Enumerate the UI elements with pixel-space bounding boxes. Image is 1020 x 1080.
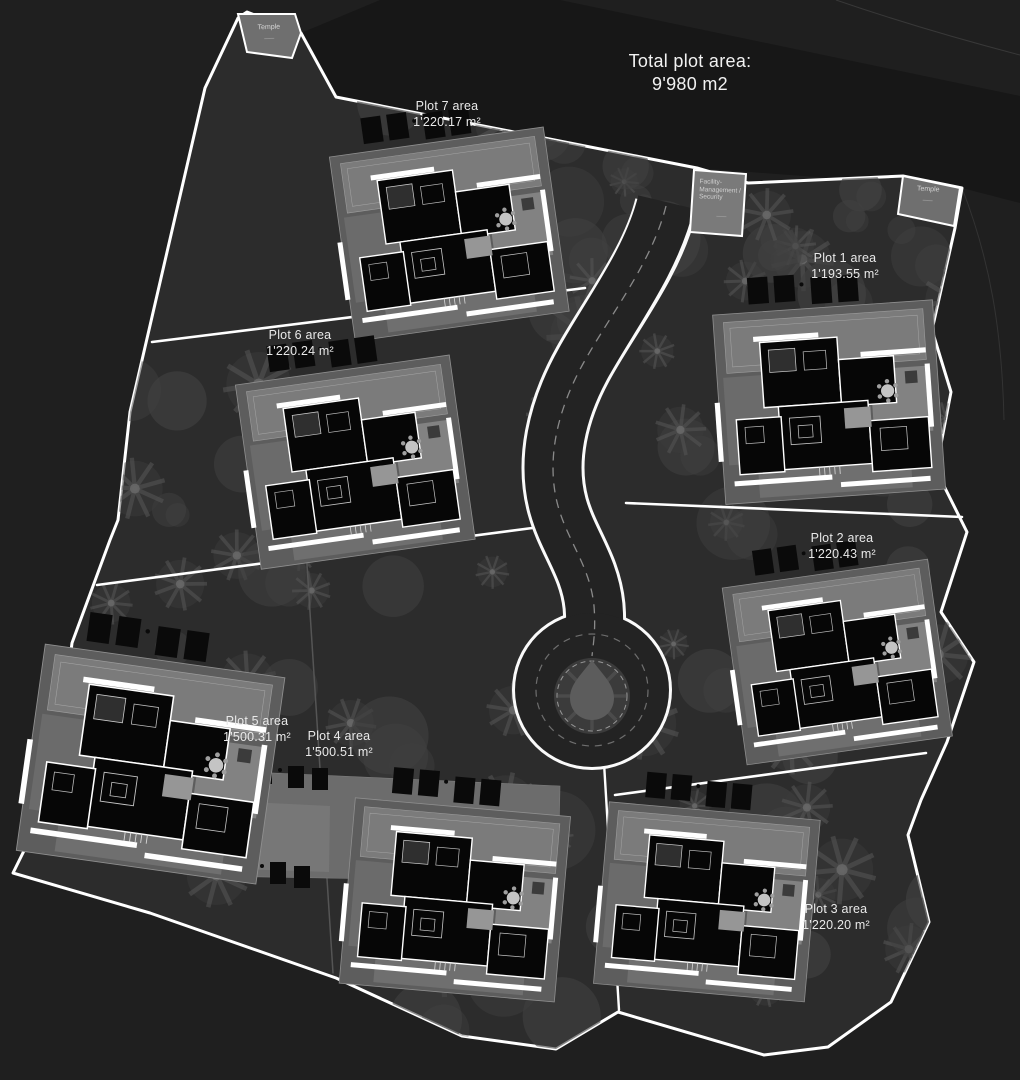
plot-7-name: Plot 7 area [413,98,481,114]
plot-1-area: 1'193.55 m² [811,266,879,282]
plot-3-area: 1'220.20 m² [802,917,870,933]
plot-5-area: 1'500.31 m² [223,729,291,745]
plot-4-area: 1'500.51 m² [305,744,373,760]
plot-2-name: Plot 2 area [808,530,876,546]
plot-4-label: Plot 4 area 1'500.51 m² [305,728,373,760]
plot-3-label: Plot 3 area 1'220.20 m² [802,901,870,933]
plot-6-name: Plot 6 area [266,327,334,343]
plot-2-label: Plot 2 area 1'220.43 m² [808,530,876,562]
plot-6-area: 1'220.24 m² [266,343,334,359]
plot-1-name: Plot 1 area [811,250,879,266]
temple-right-text: Temple [917,185,940,193]
plot-7-area: 1'220.17 m² [413,114,481,130]
facility-text: Facility-Management / Security [699,178,741,201]
facility-label: Facility-Management / Security [698,178,745,218]
plot-3-name: Plot 3 area [802,901,870,917]
plot-5-label: Plot 5 area 1'500.31 m² [223,713,291,745]
total-area-title: Total plot area: 9'980 m2 [629,50,752,97]
plot-6-label: Plot 6 area 1'220.24 m² [266,327,334,359]
temple-left-text: Temple [257,24,280,32]
temple-right-label: Temple [908,185,949,202]
plot-2-area: 1'220.43 m² [808,546,876,562]
total-area-line2: 9'980 m2 [629,73,752,96]
plot-1-label: Plot 1 area 1'193.55 m² [811,250,879,282]
plot-4-name: Plot 4 area [305,728,373,744]
site-plan: Total plot area: 9'980 m2 Plot 7 area 1'… [0,0,1020,1080]
temple-left-label: Temple [249,23,290,40]
plot-5-name: Plot 5 area [223,713,291,729]
total-area-line1: Total plot area: [629,50,752,73]
plot-7-label: Plot 7 area 1'220.17 m² [413,98,481,130]
